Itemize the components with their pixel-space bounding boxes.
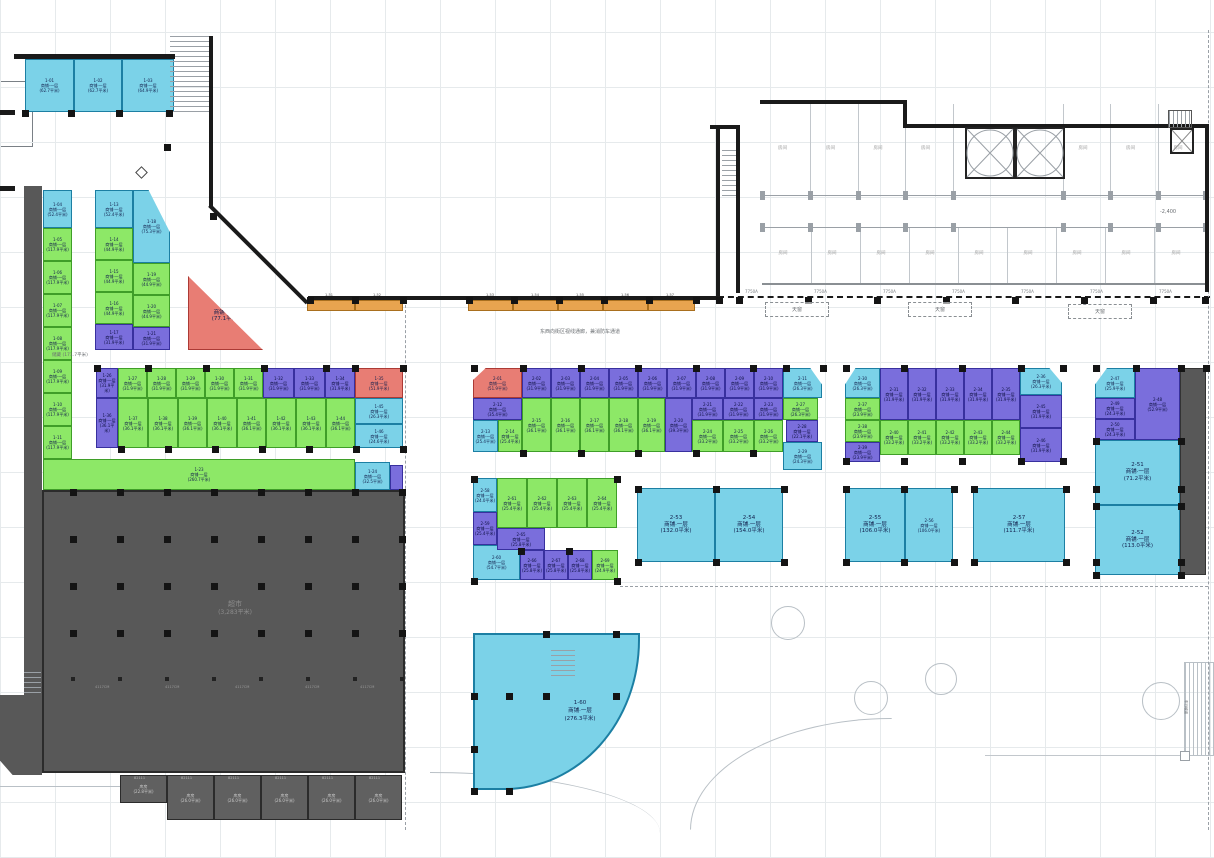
column-marker bbox=[471, 365, 478, 372]
column-marker bbox=[211, 583, 218, 590]
column-marker bbox=[400, 677, 404, 681]
room-divider bbox=[811, 227, 812, 283]
hotel-room-label: 房间 bbox=[1172, 250, 1181, 256]
column-marker bbox=[352, 536, 359, 543]
column-marker bbox=[70, 489, 77, 496]
colonnade-label: 7750A bbox=[1159, 289, 1172, 294]
storeroom-label: (22.8平米) bbox=[133, 789, 153, 794]
unit-1-44: 1-44商铺·一层(36.1平米) bbox=[326, 398, 355, 448]
unit-1-30: 1-30商铺·一层(31.9平米) bbox=[205, 368, 234, 398]
unit-label: (36.1平米) bbox=[584, 428, 604, 433]
column-marker bbox=[211, 536, 218, 543]
column-marker bbox=[353, 677, 357, 681]
unit-label: (33.2平米) bbox=[884, 440, 904, 445]
unit-label: (31.9平米) bbox=[912, 397, 932, 402]
column-marker bbox=[211, 489, 218, 496]
elevator-x-box bbox=[1170, 128, 1194, 154]
unit-1-42: 1-42商铺·一层(36.1平米) bbox=[266, 398, 296, 448]
column-marker bbox=[164, 489, 171, 496]
column-marker bbox=[1150, 297, 1157, 304]
wall bbox=[0, 186, 15, 191]
unit-2-01: 2-01商铺·一层(51.9平米) bbox=[473, 368, 522, 398]
column-marker bbox=[843, 559, 850, 566]
dimension-label: 4117CM bbox=[165, 685, 179, 689]
unit-2-32: 2-32商铺·一层(31.9平米) bbox=[908, 368, 936, 420]
unit-2-17: 2-17商铺·一层(36.1平米) bbox=[580, 398, 609, 452]
unit-1-02: 1-02商铺·一层(62.7平米) bbox=[74, 59, 122, 112]
unit-2-28: 2-28商铺·一层(22.1平米) bbox=[786, 420, 818, 442]
unit-label: 2-53 bbox=[670, 515, 682, 522]
unit-label: (106.0平米) bbox=[918, 528, 941, 533]
unit-2-57: 2-57商铺·一层(111.7平米) bbox=[973, 488, 1065, 562]
column-marker bbox=[400, 297, 407, 304]
unit-label: (117.9平米) bbox=[46, 412, 69, 417]
column-marker bbox=[399, 536, 406, 543]
unit-2-21: 2-21商铺·一层(31.9平米) bbox=[692, 398, 723, 420]
room-divider bbox=[1056, 227, 1057, 283]
unit-label: (77.1平米) bbox=[212, 316, 240, 323]
unit-label: (26.3平米) bbox=[1031, 384, 1051, 389]
unit-label: (31.9平米) bbox=[968, 397, 988, 402]
column-marker bbox=[116, 110, 123, 117]
column-stub bbox=[1108, 191, 1113, 200]
unit-label: (26.3平米) bbox=[852, 386, 872, 391]
unit-label: 2-52 bbox=[1131, 530, 1143, 537]
unit-label: (31.9平米) bbox=[180, 386, 200, 391]
unit-1-32: 1-32商铺·一层(31.9平米) bbox=[263, 368, 294, 398]
column-marker bbox=[1063, 559, 1070, 566]
unit-2-34: 2-34商铺·一层(31.9平米) bbox=[964, 368, 992, 420]
unit-block bbox=[1180, 368, 1206, 575]
unit-2-10: 2-10商铺·一层(31.9平米) bbox=[754, 368, 783, 398]
column-marker bbox=[259, 677, 263, 681]
unit-1-31: 1-31商铺·一层(31.9平米) bbox=[234, 368, 263, 398]
column-marker bbox=[614, 476, 621, 483]
unit-2-22: 2-22商铺·一层(31.9平米) bbox=[723, 398, 754, 420]
unit-label: (22.1平米) bbox=[792, 434, 812, 439]
column-marker bbox=[399, 583, 406, 590]
storage-label: 储藏 (171.7平米) bbox=[52, 352, 88, 358]
unit-2-38: 2-38商铺·一层(23.9平米) bbox=[845, 420, 880, 442]
unit-label: (54.7平米) bbox=[486, 565, 506, 570]
column-stub bbox=[856, 223, 861, 232]
unit-1-04: 1-04商铺·一层(52.4平米) bbox=[43, 190, 72, 228]
column-marker bbox=[22, 110, 29, 117]
unit-2-13: 2-13商铺·一层(25.4平米) bbox=[473, 420, 498, 452]
column-marker bbox=[117, 536, 124, 543]
unit-2-04: 2-04商铺·一层(31.9平米) bbox=[580, 368, 609, 398]
unit-label: (25.9平米) bbox=[1105, 386, 1125, 391]
arcade-unit-id: 1-54 bbox=[531, 293, 539, 297]
colonnade-label: 7750A bbox=[883, 289, 896, 294]
unit-label: (25.4平米) bbox=[532, 506, 552, 511]
unit-label: (23.9平米) bbox=[852, 412, 872, 417]
unit-2-58: 2-58商铺·一层(24.0平米) bbox=[473, 478, 497, 512]
unit-2-45: 2-45商铺·一层(31.9平米) bbox=[1020, 395, 1062, 428]
unit-label: (25.4平米) bbox=[500, 439, 520, 444]
unit-2-26: 2-26商铺·一层(33.2平米) bbox=[754, 420, 783, 452]
unit-label: (33.2平米) bbox=[728, 439, 748, 444]
street-annotation: 东西向街区视线通廊，兼消防车通道 bbox=[540, 328, 620, 335]
unit-1-11: 1-11商铺·一层(117.9平米) bbox=[43, 426, 72, 459]
unit-1-40: 1-40商铺·一层(36.1平米) bbox=[207, 398, 237, 448]
unit-label: (36.1平米) bbox=[526, 428, 546, 433]
unit-label: (25.8平米) bbox=[511, 542, 531, 547]
colonnade-label: 7750A bbox=[1090, 289, 1103, 294]
unit-2-43: 2-43商铺·一层(33.2平米) bbox=[964, 420, 992, 455]
column-marker bbox=[1178, 559, 1185, 566]
unit-2-47: 2-47商铺·一层(25.9平米) bbox=[1095, 368, 1135, 398]
unit-label: (31.9平米) bbox=[330, 386, 350, 391]
hotel-room-label: 房间 bbox=[826, 145, 835, 151]
unit-label: (36.1平米) bbox=[641, 428, 661, 433]
unit-1-53: 1-53商铺·一层(12.1平米) bbox=[468, 300, 513, 311]
hotel-room-label: 房间 bbox=[828, 250, 837, 256]
corridor-line bbox=[762, 195, 1205, 196]
column-marker bbox=[820, 365, 827, 372]
unit-1-24: 1-24商铺·一层(32.5平米) bbox=[355, 462, 390, 490]
ramp-label: 车行坡道 bbox=[1183, 700, 1188, 714]
unit-2-53: 2-53商铺·一层(132.0平米) bbox=[637, 488, 715, 562]
unit-2-02: 2-02商铺·一层(31.9平米) bbox=[522, 368, 551, 398]
column-marker bbox=[1093, 559, 1100, 566]
unit-label: (36.1平米) bbox=[182, 426, 202, 431]
ramp-marker bbox=[1180, 751, 1190, 761]
unit-label: (23.9平米) bbox=[852, 434, 872, 439]
column-marker bbox=[693, 365, 700, 372]
unit-1-51: 1-51商铺·一层(12.1平米) bbox=[307, 300, 355, 311]
unit-2-35: 2-35商铺·一层(31.9平米) bbox=[992, 368, 1020, 420]
unit-2-50: 2-50商铺·一层(24.3平米) bbox=[1095, 419, 1135, 440]
unit-label: (44.9平米) bbox=[104, 247, 124, 252]
column-marker bbox=[1093, 572, 1100, 579]
skylight-box: 天窗 bbox=[1068, 304, 1132, 319]
wall bbox=[14, 54, 175, 59]
unit-1-43: 1-43商铺·一层(36.1平米) bbox=[296, 398, 326, 448]
column-stub bbox=[951, 223, 956, 232]
unit-label: (36.1平米) bbox=[212, 426, 232, 431]
arcade-unit-id: 1-53 bbox=[486, 293, 494, 297]
dark-zone-wing bbox=[0, 695, 42, 775]
room-divider bbox=[953, 104, 954, 195]
unit-label: (111.7平米) bbox=[1003, 528, 1034, 535]
column-stub bbox=[808, 191, 813, 200]
colonnade-label: 7750A bbox=[745, 289, 758, 294]
unit-label: (25.4平米) bbox=[475, 439, 495, 444]
column-marker bbox=[1178, 503, 1185, 510]
column-marker bbox=[164, 536, 171, 543]
column-marker bbox=[352, 489, 359, 496]
unit-1-57: 1-57商铺·一层(12.1平米) bbox=[648, 300, 695, 311]
unit-label: (31.9平米) bbox=[122, 386, 142, 391]
unit-1-10: 1-10商铺·一层(117.9平米) bbox=[43, 393, 72, 426]
room-divider bbox=[860, 227, 861, 283]
column-marker bbox=[70, 630, 77, 637]
column-stub bbox=[808, 223, 813, 232]
column-marker bbox=[399, 489, 406, 496]
column-marker bbox=[164, 144, 171, 151]
column-marker bbox=[1093, 438, 1100, 445]
wall bbox=[736, 125, 740, 293]
room-divider bbox=[1007, 227, 1008, 283]
column-marker bbox=[70, 583, 77, 590]
storeroom-code: 82111 bbox=[134, 776, 145, 780]
storeroom-code: 82111 bbox=[181, 776, 192, 780]
unit-label: (36.1平米) bbox=[153, 426, 173, 431]
column-marker bbox=[843, 486, 850, 493]
unit-1-37: 1-37商铺·一层(36.1平米) bbox=[118, 398, 148, 448]
room-divider bbox=[1105, 227, 1106, 283]
column-marker bbox=[259, 446, 266, 453]
arcade-unit-id: 1-51 bbox=[325, 293, 333, 297]
column-marker bbox=[118, 446, 125, 453]
column-marker bbox=[471, 788, 478, 795]
unit-2-08: 2-08商铺·一层(31.9平米) bbox=[696, 368, 725, 398]
storeroom-label: (26.0平米) bbox=[274, 798, 294, 803]
column-marker bbox=[165, 677, 169, 681]
column-marker bbox=[203, 365, 210, 372]
unit-2-65: 2-65商铺·一层(25.8平米) bbox=[497, 528, 545, 550]
elevator-hatch bbox=[1168, 110, 1192, 128]
unit-1-41: 1-41商铺·一层(36.1平米) bbox=[237, 398, 266, 448]
unit-2-46: 2-46商铺·一层(31.9平米) bbox=[1020, 428, 1062, 462]
vehicle-ramp bbox=[1184, 662, 1214, 756]
unit-1-05: 1-05商铺·一层(117.9平米) bbox=[43, 228, 72, 261]
skylight-box: 天窗 bbox=[765, 302, 829, 317]
unit-2-44: 2-44商铺·一层(33.2平米) bbox=[992, 420, 1020, 455]
unit-label: (31.9平米) bbox=[697, 412, 717, 417]
unit-label: (31.9平米) bbox=[1031, 448, 1051, 453]
column-marker bbox=[352, 630, 359, 637]
unit-label: (44.9平米) bbox=[104, 311, 124, 316]
unit-label: (25.4平米) bbox=[475, 531, 495, 536]
hotel-room-label: 房间 bbox=[779, 250, 788, 256]
unit-label: (106.0平米) bbox=[859, 528, 890, 535]
diagonal-wall bbox=[208, 204, 308, 304]
unit-label: (39.3平米) bbox=[668, 428, 688, 433]
column-marker bbox=[1178, 438, 1185, 445]
storeroom-label: (26.0平米) bbox=[180, 798, 200, 803]
column-marker bbox=[693, 450, 700, 457]
unit-label: (71.2平米) bbox=[1124, 476, 1152, 483]
room-divider bbox=[1110, 104, 1111, 195]
column-marker bbox=[399, 630, 406, 637]
unit-2-41: 2-41商铺·一层(33.2平米) bbox=[908, 420, 936, 455]
column-marker bbox=[614, 578, 621, 585]
unit-2-69: 2-69商铺·一层(24.9平米) bbox=[592, 550, 618, 580]
hotel-room-label: 房间 bbox=[874, 145, 883, 151]
unit-2-19: 2-19商铺·一层(36.1平米) bbox=[638, 398, 665, 452]
column-marker bbox=[306, 677, 310, 681]
column-marker bbox=[843, 458, 850, 465]
landscape-circle bbox=[925, 663, 957, 695]
column-marker bbox=[258, 630, 265, 637]
unit-label: (31.9平米) bbox=[758, 386, 778, 391]
column-stub bbox=[903, 223, 908, 232]
column-marker bbox=[471, 476, 478, 483]
column-marker bbox=[323, 365, 330, 372]
unit-label: (25.4平米) bbox=[562, 506, 582, 511]
storeroom-label: (26.0平米) bbox=[227, 798, 247, 803]
column-marker bbox=[506, 693, 513, 700]
column-marker bbox=[212, 677, 216, 681]
column-marker bbox=[68, 110, 75, 117]
column-stub bbox=[1108, 223, 1113, 232]
column-marker bbox=[258, 536, 265, 543]
unit-1-38: 1-38商铺·一层(36.1平米) bbox=[148, 398, 178, 448]
unit-2-30: 2-30商铺·一层(26.3平米) bbox=[845, 368, 880, 398]
unit-label: (44.9平米) bbox=[141, 314, 161, 319]
unit-2-63: 2-63商铺·一层(25.4平米) bbox=[557, 478, 587, 528]
reference-line bbox=[405, 300, 406, 830]
unit-1-45: 1-45商铺·一层(26.3平米) bbox=[355, 398, 403, 424]
unit-2-20: 2-20商铺·一层(39.3平米) bbox=[665, 398, 692, 452]
unit-label: (64.9平米) bbox=[138, 88, 158, 93]
unit-1-21: 1-21商铺·一层(31.9平米) bbox=[133, 327, 170, 350]
stair-treads bbox=[551, 650, 575, 680]
storeroom: 库房(26.0平米) bbox=[308, 775, 355, 820]
column-marker bbox=[1203, 365, 1210, 372]
hotel-room-label: 房间 bbox=[1024, 250, 1033, 256]
unit-2-12: 2-12商铺·一层(35.4平米) bbox=[473, 398, 522, 420]
room-divider bbox=[858, 104, 859, 195]
landscape-circle bbox=[1142, 682, 1180, 720]
unit-label: (62.7平米) bbox=[88, 88, 108, 93]
unit-label: (32.5平米) bbox=[362, 479, 382, 484]
unit-1-19: 1-19商铺·一层(44.9平米) bbox=[133, 263, 170, 295]
column-marker bbox=[713, 486, 720, 493]
unit-label: (33.2平米) bbox=[758, 439, 778, 444]
stair-treads bbox=[170, 36, 210, 115]
unit-2-49: 2-49商铺·一层(24.3平米) bbox=[1095, 398, 1135, 419]
unit-2-33: 2-33商铺·一层(31.9平米) bbox=[936, 368, 964, 420]
room-divider bbox=[810, 104, 811, 195]
column-marker bbox=[601, 297, 608, 304]
unit-label: (33.2平米) bbox=[968, 440, 988, 445]
unit-label: (36.1平米) bbox=[97, 423, 117, 433]
storeroom: 库房(26.0平米) bbox=[261, 775, 308, 820]
unit-2-36: 2-36商铺·一层(26.3平米) bbox=[1020, 368, 1062, 395]
hotel-bottom-line bbox=[762, 283, 1205, 285]
unit-label: (33.2平米) bbox=[697, 439, 717, 444]
unit-label: (31.9平米) bbox=[238, 386, 258, 391]
unit-1-39: 1-39商铺·一层(36.1平米) bbox=[178, 398, 207, 448]
unit-2-59: 2-59商铺·一层(25.4平米) bbox=[473, 512, 497, 545]
hotel-room-label: 房间 bbox=[975, 250, 984, 256]
unit-label: (24.9平米) bbox=[595, 568, 615, 573]
unit-1-18: 1-18商铺·一层(75.3平米) bbox=[133, 190, 170, 263]
column-marker bbox=[305, 630, 312, 637]
storeroom: 库房(26.0平米) bbox=[355, 775, 402, 820]
column-marker bbox=[471, 746, 478, 753]
unit-1-16: 1-16商铺·一层(44.9平米) bbox=[95, 292, 133, 324]
column-marker bbox=[1081, 297, 1088, 304]
unit-2-67: 2-67商铺·一层(25.8平米) bbox=[544, 550, 568, 580]
unit-label: (117.9平米) bbox=[46, 379, 69, 384]
unit-label: (33.2平米) bbox=[996, 440, 1016, 445]
column-marker bbox=[736, 297, 743, 304]
column-marker bbox=[971, 559, 978, 566]
unit-label: (75.3平米) bbox=[141, 229, 161, 234]
unit-label: (44.9平米) bbox=[104, 279, 124, 284]
column-marker bbox=[901, 458, 908, 465]
unit-1-23: 1-23商铺·一层(260.7平米) bbox=[43, 459, 355, 490]
unit-label: (25.4平米) bbox=[502, 506, 522, 511]
column-marker bbox=[1178, 365, 1185, 372]
unit-2-54: 2-54商铺·一层(154.0平米) bbox=[715, 488, 783, 562]
unit-label: (36.1平米) bbox=[241, 426, 261, 431]
unit-2-29: 2-29商铺·一层(24.3平米) bbox=[783, 442, 822, 470]
column-marker bbox=[781, 559, 788, 566]
column-marker bbox=[959, 365, 966, 372]
reference-line bbox=[620, 586, 1208, 587]
unit-1-03: 1-03商铺·一层(64.9平米) bbox=[122, 59, 174, 112]
column-marker bbox=[166, 110, 173, 117]
column-marker bbox=[94, 365, 101, 372]
unit-label: (26.3平米) bbox=[790, 412, 810, 417]
unit-2-52: 2-52商铺·一层(113.0平米) bbox=[1095, 505, 1180, 575]
unit-label: (36.1平米) bbox=[301, 426, 321, 431]
column-marker bbox=[566, 548, 573, 555]
unit-2-24: 2-24商铺·一层(33.2平米) bbox=[692, 420, 723, 452]
unit-1-27: 1-27商铺·一层(31.9平米) bbox=[118, 368, 147, 398]
room-divider bbox=[909, 227, 910, 283]
column-marker bbox=[781, 486, 788, 493]
column-marker bbox=[258, 489, 265, 496]
column-marker bbox=[613, 693, 620, 700]
column-marker bbox=[1063, 486, 1070, 493]
column-marker bbox=[353, 446, 360, 453]
unit-2-51: 2-51商铺·一层(71.2平米) bbox=[1095, 440, 1180, 505]
unit-1-56: 1-56商铺·一层(12.1平米) bbox=[603, 300, 648, 311]
wall bbox=[209, 36, 213, 116]
column-stub bbox=[760, 223, 765, 232]
column-marker bbox=[1133, 365, 1140, 372]
unit-label: (31.9平米) bbox=[104, 340, 124, 345]
unit-1-34: 1-34商铺·一层(31.9平米) bbox=[325, 368, 355, 398]
column-marker bbox=[1178, 572, 1185, 579]
unit-label: (52.4平米) bbox=[104, 212, 124, 217]
stair-treads bbox=[722, 150, 737, 198]
column-marker bbox=[901, 365, 908, 372]
unit-1-20: 1-20商铺·一层(44.9平米) bbox=[133, 295, 170, 327]
unit-label: (31.9平米) bbox=[996, 397, 1016, 402]
column-marker bbox=[164, 630, 171, 637]
unit-1-25: 1-25商铺·一层(12.8平米) bbox=[390, 465, 403, 490]
unit-2-60: 2-60商铺·一层(54.7平米) bbox=[473, 545, 520, 580]
column-marker bbox=[352, 583, 359, 590]
unit-1-36: 1-36商铺·一层(36.1平米) bbox=[96, 398, 118, 448]
unit-1-15: 1-15商铺·一层(44.9平米) bbox=[95, 260, 133, 292]
unit-label: (36.1平米) bbox=[271, 426, 291, 431]
column-marker bbox=[165, 446, 172, 453]
column-marker bbox=[164, 583, 171, 590]
column-stub bbox=[903, 191, 908, 200]
column-stub bbox=[951, 191, 956, 200]
unit-label: (62.7平米) bbox=[39, 88, 59, 93]
unit-label: (31.9平米) bbox=[268, 386, 288, 391]
unit-label: (31.9平米) bbox=[299, 386, 319, 391]
unit-label: 2-54 bbox=[743, 515, 755, 522]
unit-1-17: 1-17商铺·一层(31.9平米) bbox=[95, 324, 133, 350]
unit-label: (24.3平米) bbox=[1105, 411, 1125, 416]
unit-2-15: 2-15商铺·一层(36.1平米) bbox=[522, 398, 551, 452]
unit-label: (23.9平米) bbox=[852, 455, 872, 460]
column-marker bbox=[843, 365, 850, 372]
unit-label: (31.9平米) bbox=[209, 386, 229, 391]
unit-label: (117.9平米) bbox=[46, 280, 69, 285]
arcade-unit-id: 1-52 bbox=[373, 293, 381, 297]
